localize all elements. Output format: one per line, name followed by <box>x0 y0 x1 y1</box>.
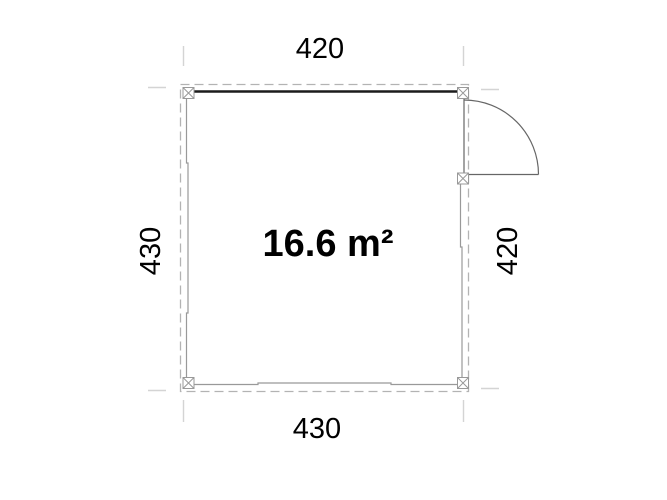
wall-line-left <box>187 98 189 378</box>
post-marker-top-left <box>183 88 194 99</box>
floor-plan-canvas: 420 430 430 420 16.6 m² <box>0 0 667 500</box>
wall-line-bottom <box>194 383 457 385</box>
dimension-label-left: 430 <box>135 227 167 275</box>
floor-plan-page: 420 430 430 420 16.6 m² <box>0 0 667 500</box>
dimension-label-top: 420 <box>296 33 344 65</box>
area-label: 16.6 m² <box>263 223 394 265</box>
door-swing <box>464 99 539 175</box>
post-marker-door-hinge <box>458 173 469 184</box>
door-arc <box>464 100 539 175</box>
dimension-label-bottom: 430 <box>293 413 341 445</box>
post-marker-bottom-right <box>458 378 469 389</box>
post-marker-bottom-left <box>183 378 194 389</box>
post-marker-top-right <box>458 88 469 99</box>
wall-line-right <box>461 184 463 378</box>
dimension-label-right: 420 <box>492 227 524 275</box>
